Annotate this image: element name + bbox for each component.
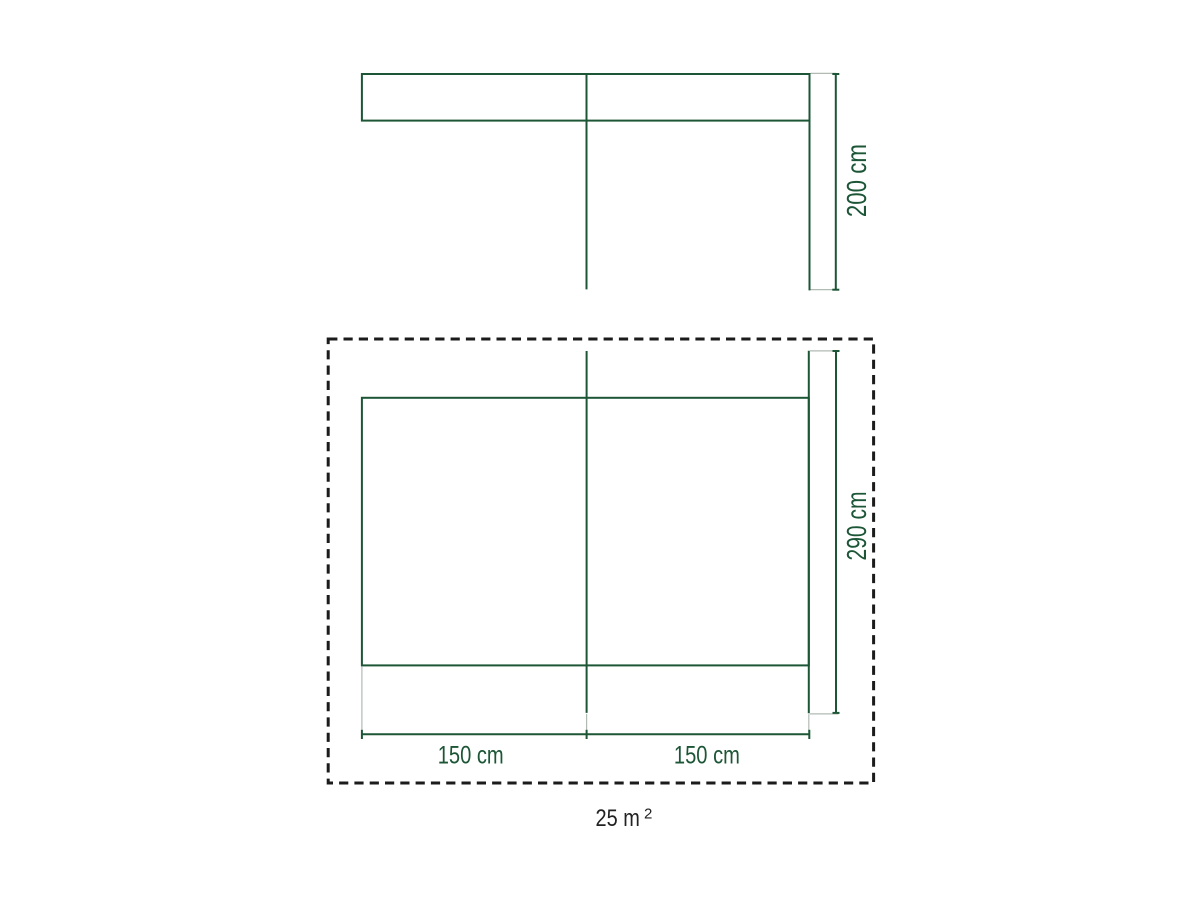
svg-text:150 cm: 150 cm bbox=[674, 742, 740, 770]
svg-text:2: 2 bbox=[644, 805, 652, 822]
svg-text:290 cm: 290 cm bbox=[841, 492, 872, 561]
svg-text:150 cm: 150 cm bbox=[438, 742, 504, 770]
svg-text:25 m: 25 m bbox=[596, 805, 640, 832]
svg-text:200 cm: 200 cm bbox=[841, 144, 872, 217]
